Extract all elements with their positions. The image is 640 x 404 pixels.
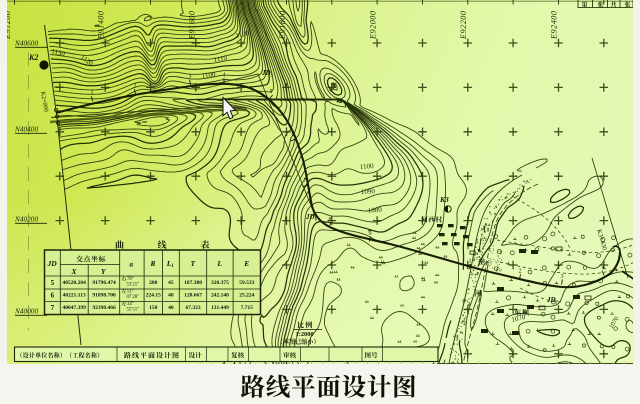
svg-text:51°: 51° [127,290,134,295]
svg-text:40047.399: 40047.399 [63,305,87,311]
svg-text:E92000: E92000 [369,11,378,40]
svg-text:9: 9 [369,231,372,237]
svg-text:N40200: N40200 [14,215,38,224]
svg-text:1090: 1090 [361,187,376,196]
svg-text:X: X [71,267,78,276]
svg-text:131.449: 131.449 [211,305,229,311]
svg-text:92390.466: 92390.466 [92,305,116,311]
svg-text:53′21″: 53′21″ [127,283,140,288]
svg-text:E91600: E91600 [188,11,197,40]
svg-text:K2: K2 [28,53,38,62]
svg-text:R: R [150,259,156,268]
svg-text:55′51″: 55′51″ [127,308,140,313]
svg-text:N40000: N40000 [14,307,38,316]
svg-text:1: 1 [469,258,472,264]
svg-text:34°: 34° [127,302,134,307]
svg-text:E: E [243,259,249,268]
svg-text:91796.474: 91796.474 [92,280,116,286]
svg-text:E92400: E92400 [550,11,559,40]
svg-text:4: 4 [223,73,226,79]
svg-text:59.533: 59.533 [239,280,254,286]
svg-text:1100: 1100 [360,162,375,171]
svg-text:5: 5 [51,279,55,287]
svg-text:3: 3 [561,274,564,280]
svg-text:4: 4 [602,265,605,271]
svg-text:7: 7 [304,178,307,184]
svg-text:07′28″: 07′28″ [127,295,140,300]
svg-text:2: 2 [134,84,137,90]
svg-text:242.140: 242.140 [211,293,229,299]
svg-text:78°: 78° [127,277,134,282]
svg-text:2: 2 [519,269,522,275]
svg-text:6: 6 [292,132,295,138]
svg-text:8: 8 [329,217,332,223]
svg-text:25.224: 25.224 [239,293,254,299]
svg-text:45: 45 [168,280,174,286]
svg-text:7.715: 7.715 [241,305,254,311]
svg-text:L: L [216,259,222,268]
svg-text:40221.113: 40221.113 [63,293,86,299]
svg-text:40: 40 [168,305,174,311]
svg-text:320.375: 320.375 [211,280,229,286]
svg-text:3: 3 [189,74,192,80]
svg-text:JD: JD [47,259,58,268]
svg-text:T: T [191,259,196,268]
svg-text:E91400: E91400 [97,11,106,40]
svg-text:200: 200 [149,280,158,286]
svg-text:1080: 1080 [367,206,382,215]
svg-text:40: 40 [168,293,174,299]
svg-text:E92200: E92200 [459,11,468,40]
svg-text:N40600: N40600 [14,39,38,48]
svg-text:1:2000: 1:2000 [296,331,314,338]
svg-text:224.15: 224.15 [146,293,161,299]
svg-text:5: 5 [270,89,273,95]
svg-text:91898.700: 91898.700 [92,293,116,299]
svg-text:N40400: N40400 [14,125,38,134]
svg-text:187.380: 187.380 [184,280,202,286]
svg-text:a: a [130,261,134,269]
svg-text:40520.204: 40520.204 [63,280,87,286]
svg-text:7: 7 [51,304,55,312]
svg-text:6: 6 [51,291,55,299]
svg-text:128.667: 128.667 [184,293,202,299]
svg-text:150: 150 [149,305,158,311]
svg-text:1: 1 [91,91,94,97]
svg-text:E91800: E91800 [278,11,287,40]
svg-text:67.323: 67.323 [185,305,200,311]
svg-text:K3: K3 [439,195,449,204]
